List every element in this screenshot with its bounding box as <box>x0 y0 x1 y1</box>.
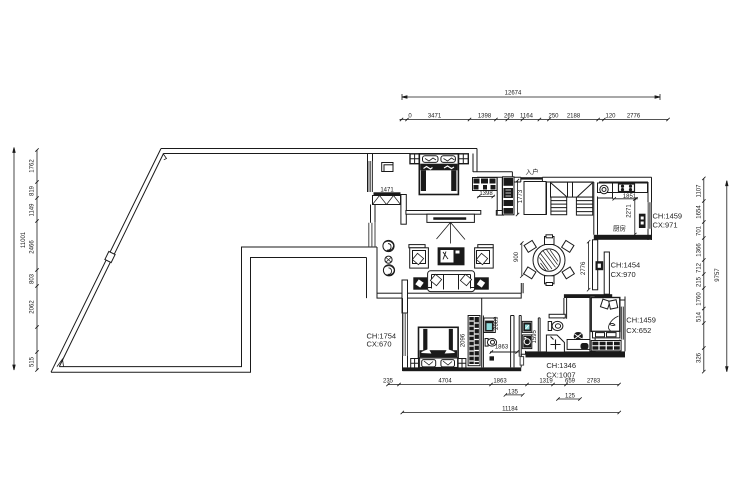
svg-text:3471: 3471 <box>428 113 442 119</box>
svg-text:2776: 2776 <box>627 113 641 119</box>
svg-text:1366: 1366 <box>697 243 703 257</box>
svg-text:514: 514 <box>697 311 703 322</box>
svg-text:4704: 4704 <box>438 379 452 385</box>
svg-text:12674: 12674 <box>505 91 522 97</box>
svg-text:CH:1459: CH:1459 <box>626 316 656 325</box>
svg-text:1762: 1762 <box>30 159 36 173</box>
svg-text:269: 269 <box>504 113 515 119</box>
svg-text:1863: 1863 <box>493 379 507 385</box>
svg-text:235: 235 <box>383 379 394 385</box>
svg-text:11001: 11001 <box>21 231 27 248</box>
svg-text:1398: 1398 <box>479 191 493 197</box>
svg-text:11184: 11184 <box>502 407 518 413</box>
svg-text:712: 712 <box>697 262 703 273</box>
svg-text:515: 515 <box>30 356 36 367</box>
svg-text:1654: 1654 <box>697 205 703 219</box>
svg-text:1164: 1164 <box>520 113 534 119</box>
svg-text:1863: 1863 <box>495 345 509 351</box>
svg-text:2783: 2783 <box>587 379 601 385</box>
svg-text:1471: 1471 <box>380 187 394 193</box>
svg-text:CH:1346: CH:1346 <box>546 361 576 370</box>
svg-text:2466: 2466 <box>30 240 36 254</box>
svg-text:135: 135 <box>508 390 519 396</box>
svg-text:326: 326 <box>697 352 703 363</box>
svg-text:125: 125 <box>565 394 576 400</box>
svg-text:120: 120 <box>605 113 616 119</box>
svg-text:701: 701 <box>697 225 703 236</box>
svg-text:CX:970: CX:970 <box>611 270 636 279</box>
svg-text:2062: 2062 <box>30 300 36 314</box>
svg-text:CX:1007: CX:1007 <box>546 371 575 380</box>
svg-text:1149: 1149 <box>30 203 36 217</box>
svg-text:1595: 1595 <box>532 329 538 343</box>
svg-text:CX:652: CX:652 <box>626 326 651 335</box>
svg-text:2776: 2776 <box>581 261 587 275</box>
svg-text:250: 250 <box>548 113 559 119</box>
svg-text:2188: 2188 <box>567 113 581 119</box>
svg-text:2096: 2096 <box>460 333 466 347</box>
svg-text:CX:670: CX:670 <box>367 340 392 349</box>
svg-text:1107: 1107 <box>697 184 703 198</box>
svg-text:CH:1459: CH:1459 <box>653 212 683 221</box>
svg-text:入户: 入户 <box>526 167 539 176</box>
svg-text:215: 215 <box>697 276 703 287</box>
svg-text:1398: 1398 <box>478 113 492 119</box>
svg-text:900: 900 <box>514 251 520 262</box>
svg-text:CX:971: CX:971 <box>653 221 678 230</box>
svg-text:1760: 1760 <box>697 292 703 306</box>
svg-text:803: 803 <box>30 273 36 284</box>
svg-text:CH:1454: CH:1454 <box>611 261 641 270</box>
svg-text:659: 659 <box>565 379 576 385</box>
svg-text:厨房: 厨房 <box>613 224 626 233</box>
svg-text:819: 819 <box>30 185 36 196</box>
svg-text:1319: 1319 <box>539 379 553 385</box>
svg-text:1773: 1773 <box>518 189 524 203</box>
svg-text:2271: 2271 <box>627 204 633 218</box>
svg-text:2009: 2009 <box>494 316 500 330</box>
svg-text:9757: 9757 <box>715 268 721 282</box>
